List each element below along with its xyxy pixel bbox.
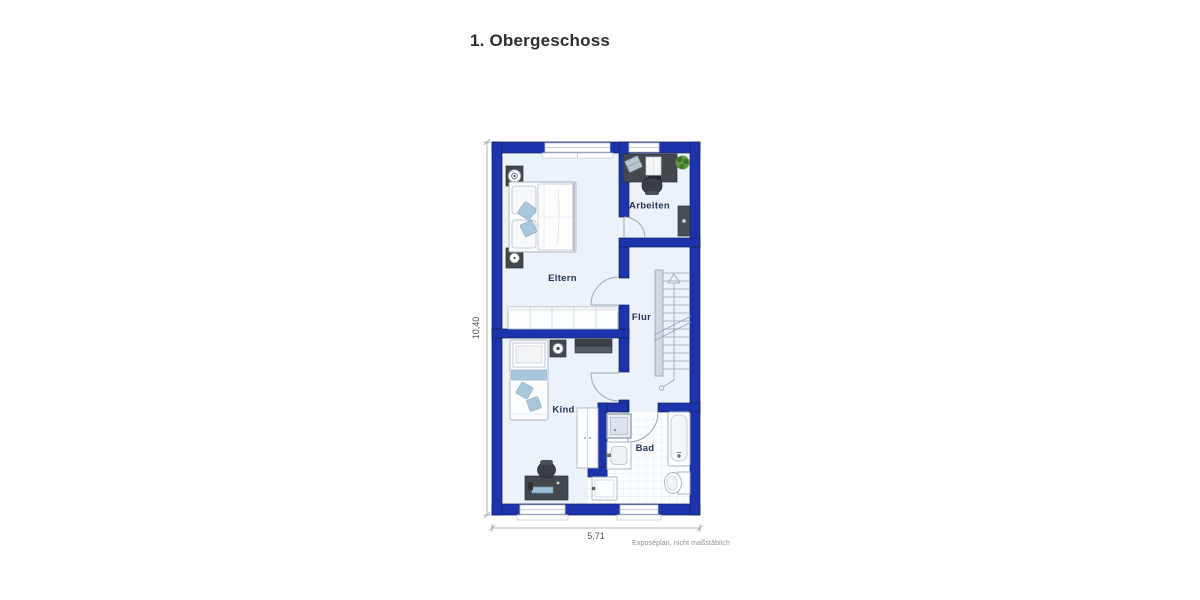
keyboard (532, 487, 553, 493)
room-label-arbeiten: Arbeiten (629, 201, 670, 212)
page-title: 1. Obergeschoss (470, 31, 610, 51)
hinge (592, 487, 596, 491)
room-label-flur: Flur (632, 312, 651, 323)
kids-desk-chair (538, 460, 556, 478)
faucet-icon (677, 454, 680, 457)
bathtub (668, 412, 690, 466)
single-bed (510, 340, 548, 420)
room-label-bad: Bad (636, 443, 655, 454)
footer-note: Exposéplan, nicht maßstäblich (560, 540, 730, 547)
dimension-width: 5,71 (489, 525, 703, 542)
plant-icon (676, 156, 690, 170)
sink (606, 442, 631, 469)
toilet (665, 472, 691, 494)
drain (614, 429, 617, 432)
double-bed (509, 182, 576, 252)
wardrobe-arbeiten (678, 206, 690, 236)
washing-machine (592, 477, 617, 500)
blanket (512, 370, 547, 380)
plan: Eltern Arbeiten Flur Kind Bad (492, 142, 700, 520)
window-arbeiten (629, 143, 659, 152)
kids-desk (525, 476, 568, 500)
shower (607, 414, 631, 438)
dimension-height-label: 10,40 (471, 317, 481, 340)
dimension-height: 10,40 (471, 139, 491, 518)
nightstand-kind (550, 340, 566, 357)
faucet-icon (606, 454, 611, 458)
bed-frame-edge (573, 183, 576, 251)
shelf-kind (575, 339, 612, 353)
room-label-kind: Kind (552, 405, 574, 416)
pillow (516, 346, 542, 363)
window-kind (517, 505, 568, 520)
sideboard (508, 307, 618, 329)
window-bad (617, 505, 661, 520)
floorplan-drawing: 10,40 5,71 (440, 128, 760, 576)
room-label-eltern: Eltern (548, 273, 577, 284)
wardrobe-kind (577, 408, 598, 468)
window-eltern (542, 143, 613, 158)
floorplan-page: 1. Obergeschoss 10,40 5,71 (0, 0, 1200, 600)
